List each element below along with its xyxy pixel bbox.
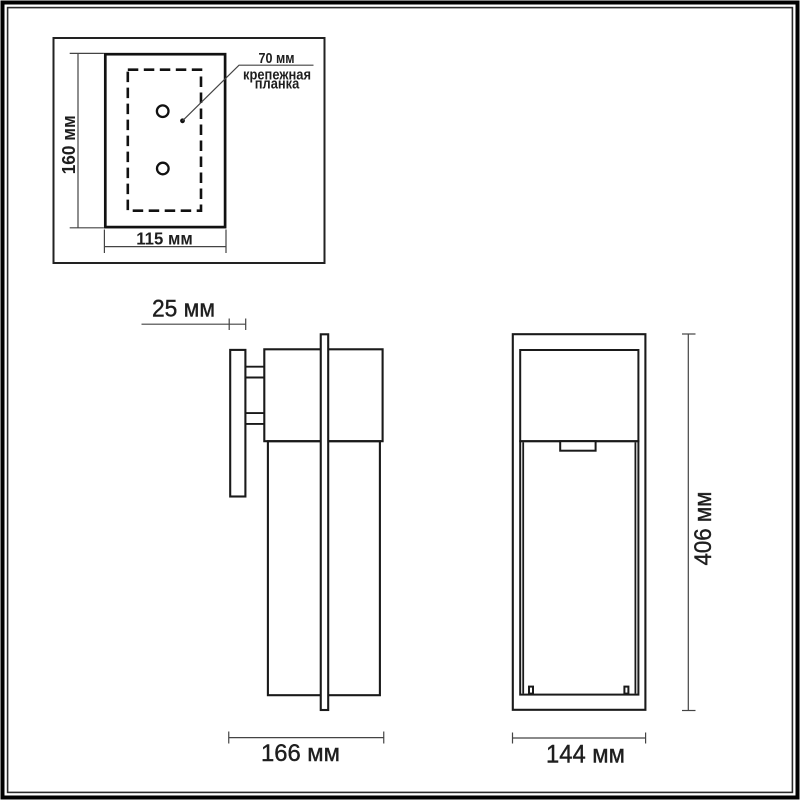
svg-text:406 мм: 406 мм: [690, 492, 717, 566]
svg-text:планка: планка: [255, 76, 300, 93]
svg-text:160 мм: 160 мм: [59, 115, 79, 174]
svg-text:115 мм: 115 мм: [136, 229, 193, 249]
svg-text:25 мм: 25 мм: [152, 296, 215, 323]
svg-text:144 мм: 144 мм: [546, 741, 625, 769]
svg-text:70 мм: 70 мм: [259, 50, 295, 67]
svg-text:166 мм: 166 мм: [261, 740, 340, 767]
